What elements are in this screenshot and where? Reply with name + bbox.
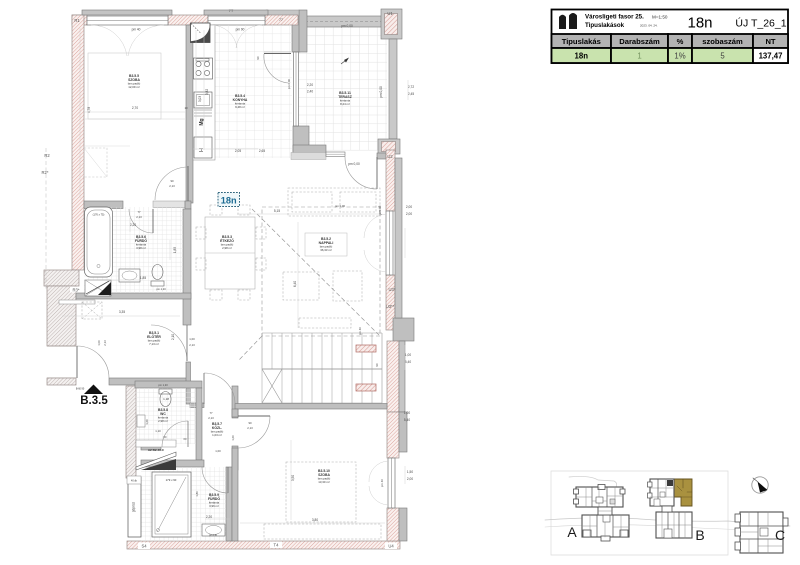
svg-text:2,20: 2,20: [130, 223, 136, 227]
svg-text:13,30 m²: 13,30 m²: [318, 480, 329, 484]
svg-text:szobaszám: szobaszám: [702, 37, 743, 46]
svg-text:ÚJ T_26_1: ÚJ T_26_1: [735, 17, 786, 30]
svg-text:U4: U4: [388, 544, 394, 549]
svg-text:1,85: 1,85: [140, 276, 146, 280]
svg-text:36,33 m²: 36,33 m²: [320, 248, 331, 252]
svg-text:2023. 04. 24.: 2023. 04. 24.: [640, 24, 658, 28]
svg-text:90: 90: [256, 56, 260, 60]
svg-text:pm 1,20: pm 1,20: [158, 383, 168, 387]
svg-text:1,85: 1,85: [173, 247, 177, 253]
svg-text:3,80: 3,80: [312, 518, 318, 522]
svg-text:10: 10: [184, 106, 188, 110]
svg-text:pm 40: pm 40: [358, 327, 362, 335]
svg-text:pm 1,20: pm 1,20: [156, 287, 166, 291]
svg-text:1,00: 1,00: [405, 353, 411, 357]
svg-text:2,10: 2,10: [171, 334, 175, 340]
svg-text:2,13: 2,13: [136, 215, 142, 219]
svg-text:B.3.5: B.3.5: [80, 395, 108, 407]
svg-text:90: 90: [170, 179, 174, 183]
svg-text:77: 77: [279, 18, 283, 22]
svg-text:3,96 m²: 3,96 m²: [209, 504, 219, 508]
svg-text:Tipuslakások: Tipuslakások: [585, 22, 625, 29]
svg-text:40 db: 40 db: [131, 480, 138, 483]
svg-text:Városligeti fasor 25.: Városligeti fasor 25.: [585, 14, 644, 21]
svg-text:%: %: [677, 37, 684, 46]
svg-text:77: 77: [137, 210, 141, 214]
svg-text:7T: 7T: [229, 8, 234, 13]
svg-text:pm 40: pm 40: [380, 479, 384, 487]
svg-text:R1: R1: [74, 18, 80, 23]
svg-text:7,13 m²: 7,13 m²: [149, 342, 159, 346]
svg-text:pm 130: pm 130: [209, 534, 218, 537]
svg-text:A: A: [567, 524, 577, 540]
svg-text:1,00: 1,00: [215, 449, 221, 453]
svg-text:1,60: 1,60: [231, 435, 235, 441]
svg-text:1,00: 1,00: [404, 411, 410, 415]
svg-text:R2*: R2*: [42, 170, 49, 175]
svg-text:1%: 1%: [674, 52, 685, 61]
svg-text:5: 5: [720, 52, 725, 61]
svg-text:C: C: [775, 527, 785, 543]
svg-text:Darabszám: Darabszám: [619, 37, 660, 46]
svg-text:M=1:50: M=1:50: [652, 15, 668, 20]
svg-text:1,03 m²: 1,03 m²: [212, 433, 222, 437]
svg-text:U3*: U3*: [389, 287, 396, 292]
svg-text:2,70: 2,70: [132, 106, 138, 110]
svg-text:2,20: 2,20: [307, 83, 313, 87]
svg-text:2,00: 2,00: [406, 212, 412, 216]
svg-text:8,24 m²: 8,24 m²: [340, 102, 350, 106]
svg-text:3,35: 3,35: [119, 310, 125, 314]
svg-text:2,40: 2,40: [307, 90, 313, 94]
svg-text:1,00: 1,00: [189, 337, 195, 341]
svg-text:pm 0,00: pm 0,00: [348, 162, 360, 166]
svg-text:90: 90: [375, 363, 379, 367]
svg-text:(176 x 75): (176 x 75): [93, 213, 105, 217]
svg-text:1,86: 1,86: [195, 491, 199, 497]
svg-text:90: 90: [248, 421, 252, 425]
svg-text:6,40: 6,40: [293, 281, 297, 287]
svg-text:3,98 m²: 3,98 m²: [136, 246, 146, 250]
svg-text:2,13: 2,13: [247, 426, 253, 430]
svg-text:B: B: [695, 527, 704, 543]
svg-text:R3*: R3*: [73, 288, 80, 293]
svg-text:pm 90: pm 90: [236, 28, 245, 32]
svg-text:18n: 18n: [221, 196, 237, 206]
svg-text:2,00: 2,00: [407, 477, 413, 481]
svg-text:pm 0,00: pm 0,00: [379, 86, 383, 98]
svg-text:pm 0,00: pm 0,00: [287, 79, 291, 90]
svg-text:R2: R2: [44, 153, 50, 158]
svg-text:2,72: 2,72: [408, 85, 414, 89]
svg-text:2,65: 2,65: [259, 149, 265, 153]
svg-text:2,13: 2,13: [103, 340, 107, 346]
svg-text:A2 B2.40-C: A2 B2.40-C: [148, 448, 165, 452]
svg-text:2,45: 2,45: [408, 92, 414, 96]
svg-text:9,48 m²: 9,48 m²: [235, 105, 245, 109]
svg-text:2,05: 2,05: [235, 149, 241, 153]
svg-text:1,60: 1,60: [145, 419, 149, 425]
svg-text:1: 1: [637, 52, 641, 61]
svg-text:3,03: 3,03: [198, 96, 202, 102]
svg-text:3,50: 3,50: [291, 475, 295, 481]
svg-text:2,13: 2,13: [208, 416, 214, 420]
svg-text:2,00: 2,00: [406, 205, 412, 209]
svg-text:137,47: 137,47: [759, 52, 783, 61]
svg-text:T4: T4: [274, 543, 280, 548]
svg-text:U2: U2: [387, 154, 393, 159]
svg-text:2,13: 2,13: [169, 184, 175, 188]
svg-text:12,09 m²: 12,09 m²: [128, 85, 139, 89]
svg-text:18n: 18n: [687, 15, 712, 32]
svg-text:2,13: 2,13: [189, 343, 195, 347]
svg-text:pm 40: pm 40: [132, 28, 141, 32]
svg-text:B-60 90: B-60 90: [76, 388, 85, 391]
svg-text:gépész: gépész: [132, 501, 136, 512]
svg-text:Tipuslakás: Tipuslakás: [562, 37, 601, 46]
svg-text:5,40: 5,40: [404, 418, 410, 422]
svg-text:pm 0,00: pm 0,00: [335, 204, 346, 208]
svg-text:1,10: 1,10: [155, 429, 161, 433]
svg-text:U3**: U3**: [386, 304, 395, 309]
svg-text:NT: NT: [765, 37, 775, 46]
svg-text:1,18: 1,18: [163, 397, 169, 401]
svg-text:pm 0,00: pm 0,00: [341, 24, 353, 28]
svg-text:U1: U1: [387, 11, 393, 16]
svg-text:1,50: 1,50: [407, 470, 413, 474]
svg-text:18n: 18n: [575, 52, 589, 61]
svg-text:3,82: 3,82: [205, 89, 209, 95]
svg-text:179 x 90: 179 x 90: [166, 478, 177, 482]
svg-text:5,15: 5,15: [274, 209, 280, 213]
svg-text:pm 43: pm 43: [378, 205, 382, 214]
svg-text:77: 77: [209, 411, 213, 415]
svg-text:S4: S4: [141, 544, 147, 549]
svg-text:2,98 m²: 2,98 m²: [158, 419, 168, 423]
svg-text:2,20: 2,20: [206, 515, 212, 519]
svg-text:1,00: 1,00: [97, 340, 101, 346]
svg-text:2,98 m²: 2,98 m²: [222, 246, 232, 250]
svg-text:5,40: 5,40: [405, 360, 411, 364]
